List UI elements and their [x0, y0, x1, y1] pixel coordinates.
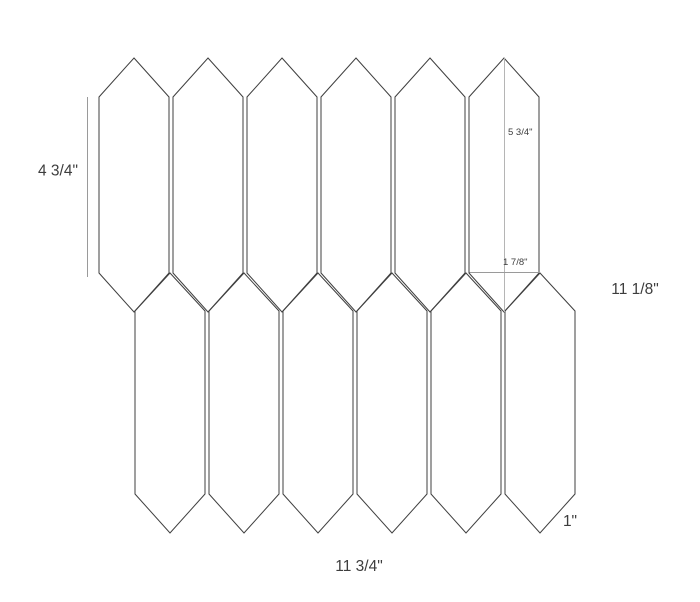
sheet-height-label: 11 1/8" [611, 281, 658, 298]
top-row-tile-3 [247, 58, 317, 312]
bottom-row-tile-5 [431, 273, 501, 533]
top-row-tile-5 [395, 58, 465, 312]
top-row-tile-2 [173, 58, 243, 312]
bottom-row-tile-4 [357, 273, 427, 533]
side-length-label: 4 3/4" [38, 163, 78, 180]
tiles-layer [99, 58, 575, 533]
tile-dimension-diagram: 4 3/4" 5 3/4" 1 7/8" 11 1/8" 1" 11 3/4" [0, 0, 700, 602]
diagram-canvas: 4 3/4" 5 3/4" 1 7/8" 11 1/8" 1" 11 3/4" [0, 0, 700, 602]
bottom-row-tile-2 [209, 273, 279, 533]
bottom-row-tile-1 [135, 273, 205, 533]
point-height-label: 1" [563, 513, 577, 530]
bottom-row-tile-6 [505, 273, 575, 533]
half-width-label: 1 7/8" [503, 257, 528, 268]
bottom-row-tile-3 [283, 273, 353, 533]
top-row-tile-4 [321, 58, 391, 312]
top-row-tile-1 [99, 58, 169, 312]
sheet-width-label: 11 3/4" [335, 558, 382, 575]
point-to-point-label: 5 3/4" [508, 127, 533, 138]
